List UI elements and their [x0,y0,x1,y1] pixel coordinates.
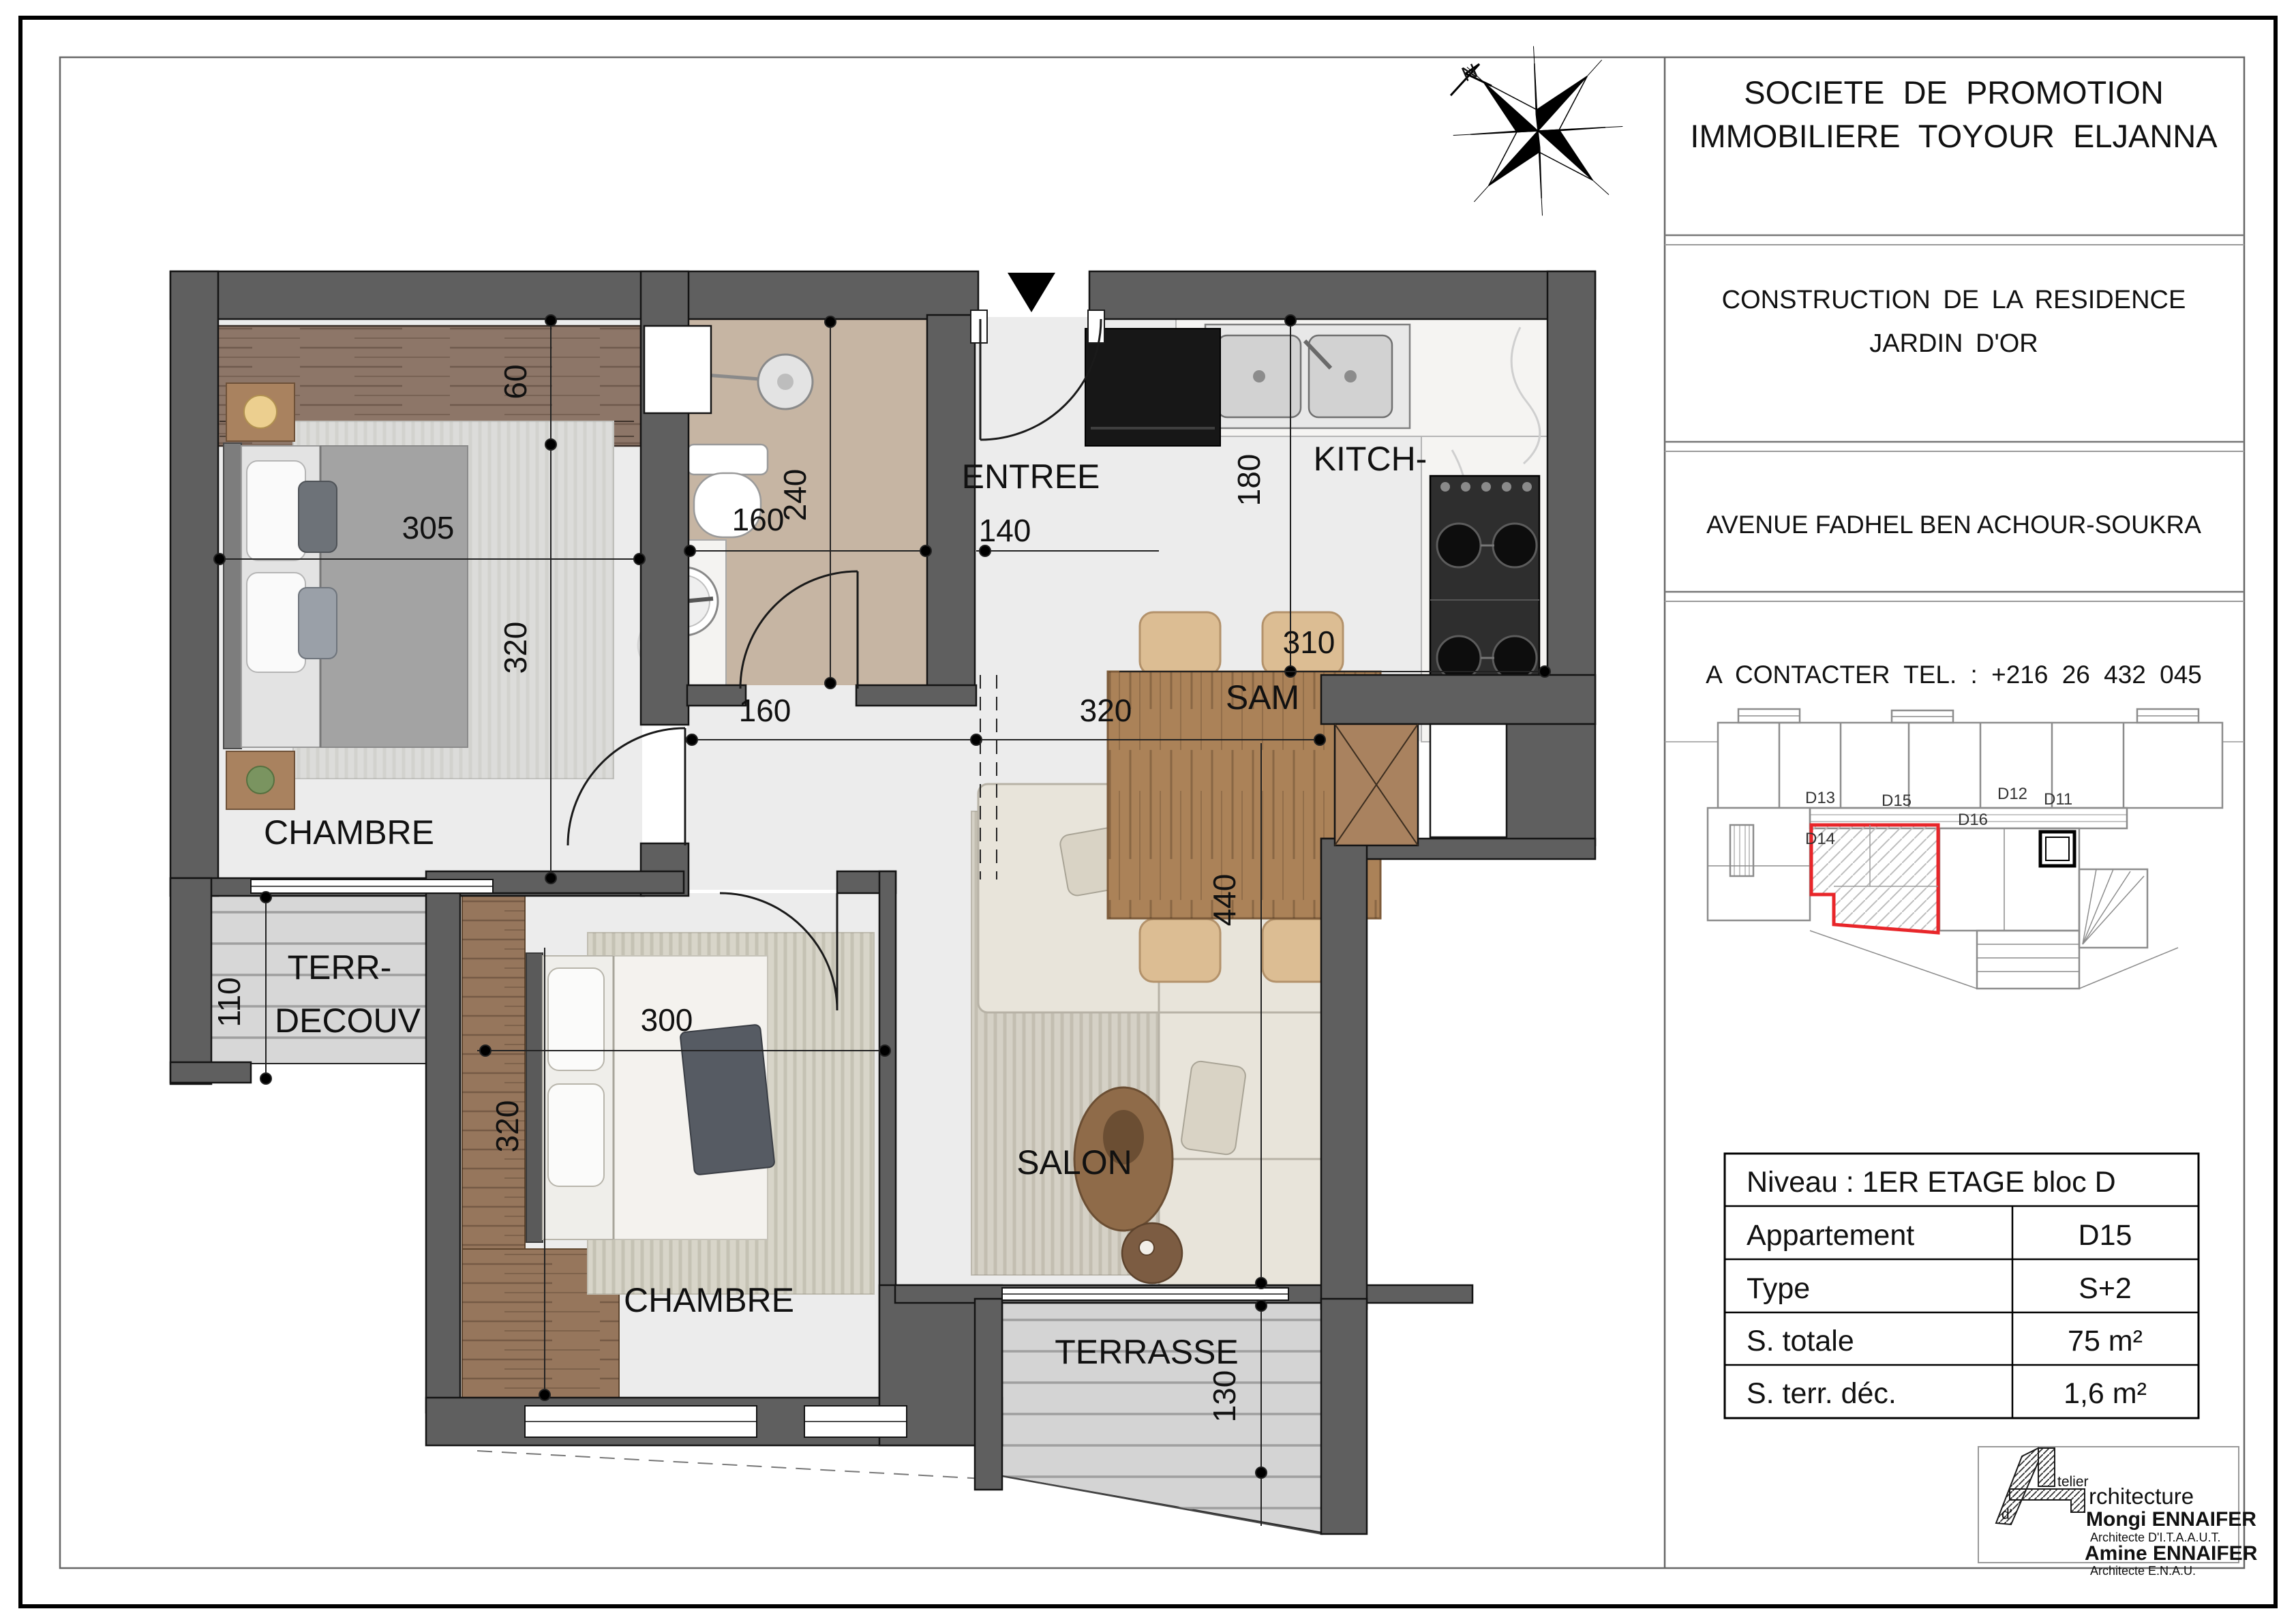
row-appartement-value: D15 [2079,1219,2132,1252]
chambre1-furniture [213,326,641,809]
row-type-value: S+2 [2079,1272,2132,1305]
dim-sam-width: 320 [1080,693,1132,728]
architect-block: d' telier rchitecture Mongi ENNAIFER Arc… [1978,1447,2258,1578]
unit-code-d13: D13 [1805,789,1835,807]
dim-chambre2-width: 300 [641,1002,693,1038]
dim-entree-width: 140 [979,513,1031,548]
terrasse-label: TERRASSE [1055,1333,1239,1371]
logo-architecture-suffix: rchitecture [2089,1484,2194,1509]
contact-phone: A CONTACTER TEL. : +216 26 432 045 [1706,661,2202,689]
dim-salon-height: 440 [1207,874,1242,927]
row-terrace-label: S. terr. déc. [1747,1377,1897,1410]
drawing-sheet: CHAMBRE 305 320 60 160 240 ENTREE 140 18… [0,0,2296,1624]
dim-bath-height: 240 [777,469,813,522]
dim-kitchen-height: 180 [1231,454,1267,507]
row-surface-label: S. totale [1747,1325,1854,1357]
row-terrace-value: 1,6 m² [2064,1377,2147,1410]
dim-chambre2-height: 320 [489,1100,525,1153]
company-name-line1: SOCIETE DE PROMOTION [1744,74,2164,110]
unit-code-d12: D12 [1997,785,2027,803]
info-table: Niveau : 1ER ETAGE bloc D Appartement D1… [1725,1154,2199,1418]
address: AVENUE FADHEL BEN ACHOUR-SOUKRA [1706,511,2201,539]
floor-plan-canvas: CHAMBRE 305 320 60 160 240 ENTREE 140 18… [0,0,2296,1624]
unit-code-d14: D14 [1805,830,1835,848]
company-name-line2: IMMOBILIERE TOYOUR ELJANNA [1690,118,2218,154]
dim-dressing-depth: 60 [498,364,533,399]
dim-chambre1-width: 305 [402,510,455,545]
dim-terr-decouv-height: 110 [211,977,247,1027]
chambre2-label: CHAMBRE [624,1281,794,1319]
architect2-name: Amine ENNAIFER [2085,1542,2258,1565]
project-line2: JARDIN D'OR [1869,329,2038,358]
kitchen-label: KITCH- [1314,440,1428,478]
table-header: Niveau : 1ER ETAGE bloc D [1747,1166,2116,1199]
row-appartement-label: Appartement [1747,1219,1914,1252]
unit-code-d15: D15 [1882,792,1912,810]
logo-atelier-suffix: telier [2057,1474,2089,1490]
architect1-name: Mongi ENNAIFER [2086,1508,2256,1531]
dim-chambre1-height: 320 [498,622,533,674]
salon-label: SALON [1016,1143,1132,1182]
terr-decouv-label-line2: DECOUV [275,1002,421,1040]
terr-decouv-label-line1: TERR- [288,948,392,987]
architect2-title: Architecte E.N.A.U. [2090,1564,2196,1578]
dim-terrasse-height: 130 [1207,1370,1242,1423]
unit-code-d11: D11 [2044,790,2072,809]
project-line1: CONSTRUCTION DE LA RESIDENCE [1722,286,2186,314]
unit-code-d16: D16 [1958,811,1988,829]
logo-d-apostrophe: d' [2002,1507,2012,1522]
sam-label: SAM [1226,678,1299,717]
dim-bath-width: 160 [732,502,785,537]
dim-hall-width: 160 [739,693,791,728]
chambre1-label: CHAMBRE [264,813,434,852]
dim-kitchen-width: 310 [1283,625,1335,660]
row-surface-value: 75 m² [2068,1325,2143,1357]
row-type-label: Type [1747,1272,1810,1305]
entree-label: ENTREE [962,457,1100,496]
